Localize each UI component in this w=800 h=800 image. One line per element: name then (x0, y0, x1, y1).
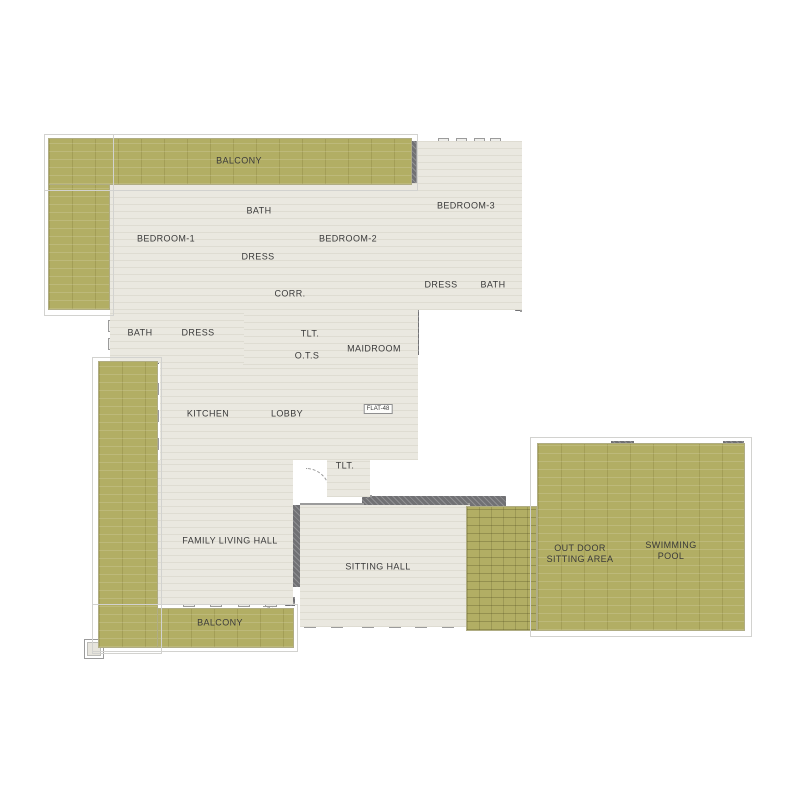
room-label-balcony-bottom: BALCONY (197, 617, 243, 628)
room-label-bedroom-3: BEDROOM-3 (437, 200, 495, 211)
room-floor (110, 183, 420, 310)
room-label-swimming-pool: SWIMMING POOL (645, 540, 696, 563)
site-boundary-line (92, 357, 162, 654)
room-label-ots: O.T.S (295, 350, 320, 361)
floor-plan-canvas: BALCONY BEDROOM-1 BATH DRESS BEDROOM-2 B… (0, 0, 800, 800)
room-label-bedroom-1: BEDROOM-1 (137, 233, 195, 244)
floor-plan: BALCONY BEDROOM-1 BATH DRESS BEDROOM-2 B… (0, 0, 800, 800)
room-label-lobby: LOBBY (271, 408, 303, 419)
site-boundary-line (530, 437, 752, 637)
room-floor (243, 310, 418, 365)
room-label-bath-top: BATH (247, 205, 272, 216)
room-label-maidroom: MAIDROOM (347, 343, 401, 354)
room-label-bedroom-2: BEDROOM-2 (319, 233, 377, 244)
room-label-dress-bed3: DRESS (424, 279, 457, 290)
room-label-sitting-hall: SITTING HALL (345, 561, 410, 572)
room-label-balcony-top: BALCONY (216, 155, 262, 166)
room-label-family-living-hall: FAMILY LIVING HALL (182, 535, 277, 546)
room-label-toilet-lower: TLT. (336, 460, 354, 471)
room-floor (157, 460, 293, 605)
room-label-dress-left: DRESS (181, 327, 214, 338)
room-label-corridor: CORR. (275, 288, 306, 299)
room-label-toilet-upper: TLT. (301, 328, 319, 339)
flat-number-tag: FLAT-48 (364, 404, 393, 414)
room-label-outdoor-sitting-area: OUT DOOR SITTING AREA (547, 543, 614, 566)
deck-surface (466, 506, 537, 631)
room-label-kitchen: KITCHEN (187, 408, 229, 419)
room-label-dress-top: DRESS (241, 251, 274, 262)
room-label-bath-left: BATH (128, 327, 153, 338)
room-label-bath-bed3: BATH (481, 279, 506, 290)
